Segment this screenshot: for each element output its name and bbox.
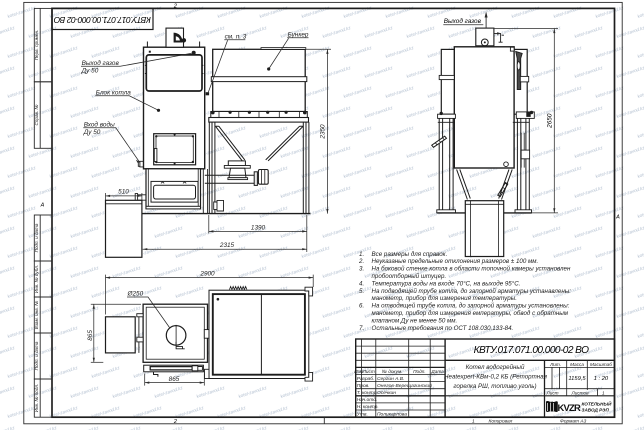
svg-text:510: 510 [118,189,129,196]
svg-text:Дата: Дата [430,369,444,374]
svg-text:КВТУ.017.071.00.000-02 ВО: КВТУ.017.071.00.000-02 ВО [474,345,590,356]
svg-text:Температура воды на входе 70°С: Температура воды на входе 70°С, на выход… [372,280,521,287]
svg-text:Формат А3: Формат А3 [560,419,587,425]
svg-text:На подводящей трубе котла, до: На подводящей трубе котла, до запорной а… [372,288,572,295]
svg-text:3.: 3. [359,266,364,273]
svg-text:На отводящей трубе котла, до з: На отводящей трубе котла, до запорной ар… [372,303,570,310]
svg-text:Неуказаные предельные отклонен: Неуказаные предельные отклонения размеро… [372,258,539,265]
svg-text:2.: 2. [358,258,364,265]
svg-text:На боковой стенке котла в обла: На боковой стенке котла в области топочн… [372,266,571,273]
svg-text:2315: 2315 [219,242,235,249]
svg-text:2: 2 [173,4,177,10]
svg-text:Лист: Лист [546,391,559,396]
svg-text:Осечкин: Осечкин [377,390,396,396]
svg-text:манометр, прибор для измерения: манометр, прибор для измерения емператур… [372,310,569,317]
svg-text:Н. контр.: Н. контр. [357,404,379,410]
svg-text:1: 1 [472,419,475,425]
svg-text:1159,5: 1159,5 [568,376,586,382]
svg-text:Вход воды: Вход воды [84,120,115,128]
svg-text:Сергин А.В.: Сергин А.В. [377,376,404,382]
svg-text:Справ. №: Справ. № [34,105,39,126]
svg-text:КОТЕЛЬНЫЙ: КОТЕЛЬНЫЙ [582,399,613,406]
svg-text:Ду 50: Ду 50 [81,68,99,75]
svg-text:Лист: Лист [362,369,375,374]
svg-text:Перв. примен.: Перв. примен. [34,30,39,61]
svg-text:Масштаб: Масштаб [590,362,612,367]
svg-text:4.: 4. [359,280,364,287]
svg-text:Поликарпова: Поликарпова [377,411,407,417]
svg-text:5.: 5. [359,288,364,295]
svg-text:см. п. 3: см. п. 3 [225,33,247,40]
svg-text:Масса: Масса [570,362,584,367]
svg-text:Котел водогрейный: Котел водогрейный [466,364,525,371]
svg-text:Онегов-Верещагинский: Онегов-Верещагинский [377,382,432,389]
svg-text:Все размеры для справок.: Все размеры для справок. [372,251,448,258]
svg-text:А: А [40,203,45,209]
svg-text:Остальные требования по ОСТ 10: Остальные требования по ОСТ 108.030.133-… [372,325,514,332]
svg-text:2650: 2650 [546,113,553,129]
svg-text:Бункер: Бункер [288,31,309,38]
svg-text:Выход газов: Выход газов [82,59,120,67]
svg-text:клапаном Ду не менее 50 мм.: клапаном Ду не менее 50 мм. [372,317,458,324]
svg-text:2900: 2900 [199,271,215,278]
svg-text:Листов: Листов [571,391,590,396]
svg-text:KVZR: KVZR [558,402,582,413]
svg-text:1390: 1390 [251,224,266,231]
svg-text:1 : 20: 1 : 20 [594,376,609,382]
svg-text:Выход газов: Выход газов [444,17,482,25]
svg-text:Т. контр.: Т. контр. [357,390,378,396]
svg-text:ЗАВОД РЭП: ЗАВОД РЭП [582,408,610,413]
svg-text:Heatexpert-КВм-0,2 КБ (Ретортн: Heatexpert-КВм-0,2 КБ (Ретортная [444,374,548,381]
svg-text:Утв.: Утв. [357,411,368,417]
svg-text:Подп. и дата: Подп. и дата [34,341,39,370]
svg-text:Копировал: Копировал [489,419,513,425]
svg-text:пробоотборный штуцер.: пробоотборный штуцер. [372,273,447,280]
svg-text:Подп.: Подп. [413,369,425,374]
svg-text:Подп. и дата: Подп. и дата [34,223,39,252]
svg-text:Лит.: Лит. [549,362,561,367]
svg-text:Ду 50: Ду 50 [83,129,101,136]
svg-text:№ докум.: № докум. [382,369,403,374]
svg-text:Нач.отд.: Нач.отд. [357,397,378,403]
svg-text:1: 1 [602,391,605,396]
svg-text:1.: 1. [359,251,364,258]
svg-text:Инв. № подл.: Инв. № подл. [34,384,39,413]
svg-text:горелка РШ, топливо уголь): горелка РШ, топливо уголь) [453,383,536,390]
svg-text:Пров.: Пров. [357,383,370,389]
svg-text:2: 2 [173,419,177,425]
svg-text:Ø250: Ø250 [127,290,144,297]
svg-text:Взам. инв. №: Взам. инв. № [34,301,39,329]
svg-text:А: А [615,214,620,220]
svg-text:2350: 2350 [320,124,327,140]
svg-text:КВТУ.017.071.00.000-02 ВО: КВТУ.017.071.00.000-02 ВО [53,15,151,25]
svg-text:865: 865 [87,330,94,341]
svg-text:865: 865 [169,376,180,383]
svg-text:6.: 6. [359,303,364,310]
svg-text:манометр, прибор для измерения: манометр, прибор для измерения температу… [372,295,517,302]
svg-text:7.: 7. [359,325,364,332]
svg-text:Инв. № дубл.: Инв. № дубл. [34,265,39,293]
svg-text:Блок котла: Блок котла [96,89,131,96]
svg-text:Разраб.: Разраб. [357,376,375,382]
